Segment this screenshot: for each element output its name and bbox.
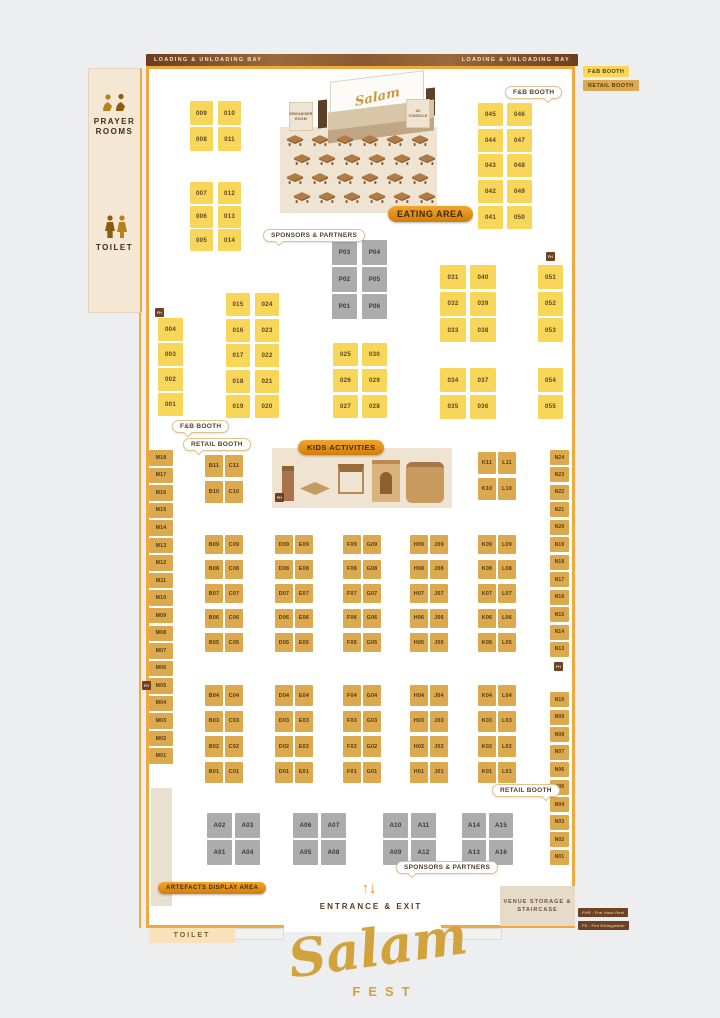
booth-l07: L07: [498, 584, 516, 603]
booth-008: 008: [190, 127, 213, 151]
booth-n15: N15: [550, 607, 569, 622]
booth-f01: F01: [343, 762, 361, 783]
booth-040: 040: [470, 265, 496, 289]
booth-c09: C09: [225, 535, 243, 554]
booth-a10: A10: [383, 813, 408, 838]
booth-c03: C03: [225, 711, 243, 732]
speaker-left-icon: [318, 99, 327, 128]
booth-l09: L09: [498, 535, 516, 554]
booth-042: 042: [478, 180, 503, 203]
booth-022: 022: [255, 344, 279, 367]
booth-l04: L04: [498, 685, 516, 706]
booth-e01: E01: [295, 762, 313, 783]
booth-b05: B05: [205, 633, 223, 652]
venue-storage-staircase: VENUE STORAGE & STAIRCASE: [500, 886, 575, 926]
picnic-table-icon: [393, 153, 411, 171]
booth-015: 015: [226, 293, 250, 316]
booth-c04: C04: [225, 685, 243, 706]
booth-b10: B10: [205, 481, 223, 503]
left-outer-wall: [139, 313, 141, 928]
booth-b01: B01: [205, 762, 223, 783]
booth-029: 029: [362, 369, 387, 392]
booth-n17: N17: [550, 572, 569, 587]
booth-044: 044: [478, 129, 503, 152]
booth-033: 033: [440, 318, 466, 342]
kids-activities-badge: KIDS ACTIVITIES: [298, 440, 384, 455]
picnic-table-icon: [311, 134, 329, 152]
booth-p03: P03: [332, 240, 357, 265]
booth-047: 047: [507, 129, 532, 152]
booth-k03: K03: [478, 711, 496, 732]
booth-l03: L03: [498, 711, 516, 732]
eating-area-badge: EATING AREA: [388, 206, 473, 222]
booth-b03: B03: [205, 711, 223, 732]
booth-f06: F06: [343, 609, 361, 628]
booth-010: 010: [218, 101, 241, 125]
booth-k04: K04: [478, 685, 496, 706]
booth-l10: L10: [498, 478, 516, 500]
kids-castle-illustration: [372, 460, 400, 502]
booth-023: 023: [255, 319, 279, 342]
booth-052: 052: [538, 292, 563, 316]
picnic-table-icon: [343, 153, 361, 171]
booth-k11: K11: [478, 452, 496, 474]
booth-e09: E09: [295, 535, 313, 554]
booth-b08: B08: [205, 560, 223, 579]
fire-hose-reel-legend: FHR : Fire Hose Reel: [578, 908, 628, 917]
booth-p01: P01: [332, 294, 357, 319]
booth-j09: J09: [430, 535, 448, 554]
booth-m05: M05: [149, 678, 173, 694]
picnic-table-icon: [361, 172, 379, 190]
booth-m17: M17: [149, 468, 173, 484]
booth-l02: L02: [498, 736, 516, 757]
booth-p06: P06: [362, 294, 387, 319]
booth-k02: K02: [478, 736, 496, 757]
booth-m08: M08: [149, 626, 173, 642]
booth-n24: N24: [550, 450, 569, 465]
booth-m07: M07: [149, 643, 173, 659]
fnb-booth-bubble-left: F&B BOOTH: [172, 420, 229, 433]
booth-p04: P04: [362, 240, 387, 265]
booth-m15: M15: [149, 503, 173, 519]
booth-d09: D09: [275, 535, 293, 554]
booth-n04: N04: [550, 797, 569, 812]
picnic-table-icon: [411, 134, 429, 152]
booth-n22: N22: [550, 485, 569, 500]
fire-hose-marker-icon: FH: [546, 252, 555, 261]
loading-bay-bar: LOADING & UNLOADING BAY LOADING & UNLOAD…: [146, 54, 578, 66]
booth-d07: D07: [275, 584, 293, 603]
booth-025: 025: [333, 343, 358, 366]
booth-017: 017: [226, 344, 250, 367]
booth-a15: A15: [489, 813, 513, 838]
booth-l08: L08: [498, 560, 516, 579]
booth-n19: N19: [550, 537, 569, 552]
booth-a08: A08: [321, 840, 346, 865]
booth-h08: H08: [410, 560, 428, 579]
picnic-table-icon: [368, 153, 386, 171]
booth-c11: C11: [225, 455, 243, 477]
booth-n10: N10: [550, 692, 569, 707]
booth-n02: N02: [550, 832, 569, 847]
booth-041: 041: [478, 206, 503, 229]
sponsors-partners-bubble-bottom: SPONSORS & PARTNERS: [396, 861, 498, 874]
booth-e02: E02: [295, 736, 313, 757]
booth-011: 011: [218, 127, 241, 151]
booth-028: 028: [362, 395, 387, 418]
booth-l11: L11: [498, 452, 516, 474]
booth-h01: H01: [410, 762, 428, 783]
booth-m02: M02: [149, 731, 173, 747]
picnic-table-icon: [286, 172, 304, 190]
booth-d02: D02: [275, 736, 293, 757]
booth-a11: A11: [411, 813, 436, 838]
booth-b11: B11: [205, 455, 223, 477]
booth-m03: M03: [149, 713, 173, 729]
booth-026: 026: [333, 369, 358, 392]
booth-l05: L05: [498, 633, 516, 652]
legend-retail-chip: RETAIL BOOTH: [583, 80, 639, 91]
booth-n23: N23: [550, 467, 569, 482]
booth-g08: G08: [363, 560, 381, 579]
booth-m04: M04: [149, 696, 173, 712]
fire-hose-marker-icon: FH: [155, 308, 164, 317]
kids-bouncy-castle-illustration: [406, 462, 444, 503]
booth-a03: A03: [235, 813, 260, 838]
loading-bay-label-right: LOADING & UNLOADING BAY: [462, 57, 570, 63]
booth-046: 046: [507, 103, 532, 126]
booth-a14: A14: [462, 813, 486, 838]
fire-hose-marker-icon: FH: [142, 681, 151, 690]
booth-009: 009: [190, 101, 213, 125]
picnic-table-icon: [361, 134, 379, 152]
booth-030: 030: [362, 343, 387, 366]
booth-m12: M12: [149, 555, 173, 571]
booth-051: 051: [538, 265, 563, 289]
booth-e06: E06: [295, 609, 313, 628]
booth-j08: J08: [430, 560, 448, 579]
picnic-table-icon: [386, 172, 404, 190]
booth-h09: H09: [410, 535, 428, 554]
booth-050: 050: [507, 206, 532, 229]
booth-d05: D05: [275, 633, 293, 652]
salam-fest-logo-sub: FEST: [340, 984, 430, 999]
booth-048: 048: [507, 154, 532, 177]
booth-007: 007: [190, 182, 213, 204]
booth-m09: M09: [149, 608, 173, 624]
booth-l01: L01: [498, 762, 516, 783]
booth-f07: F07: [343, 584, 361, 603]
booth-c06: C06: [225, 609, 243, 628]
picnic-table-icon: [368, 191, 386, 209]
booth-c02: C02: [225, 736, 243, 757]
booth-h03: H03: [410, 711, 428, 732]
loading-bay-label-left: LOADING & UNLOADING BAY: [154, 57, 262, 63]
booth-d06: D06: [275, 609, 293, 628]
kids-activities-area: [272, 448, 452, 508]
booth-038: 038: [470, 318, 496, 342]
booth-n03: N03: [550, 815, 569, 830]
booth-n06: N06: [550, 762, 569, 777]
booth-014: 014: [218, 229, 241, 251]
booth-020: 020: [255, 395, 279, 418]
booth-002: 002: [158, 368, 183, 391]
booth-g06: G06: [363, 609, 381, 628]
toilet-label: TOILET: [89, 243, 140, 253]
booth-n08: N08: [550, 727, 569, 742]
booth-f09: F09: [343, 535, 361, 554]
booth-k01: K01: [478, 762, 496, 783]
booth-b06: B06: [205, 609, 223, 628]
booth-037: 037: [470, 368, 496, 392]
floor-plan-canvas: LOADING & UNLOADING BAY LOADING & UNLOAD…: [0, 0, 720, 1018]
booth-f08: F08: [343, 560, 361, 579]
booth-d08: D08: [275, 560, 293, 579]
booth-m11: M11: [149, 573, 173, 589]
booth-a05: A05: [293, 840, 318, 865]
booth-c01: C01: [225, 762, 243, 783]
retail-booth-bubble-bottom: RETAIL BOOTH: [492, 784, 560, 797]
prayer-rooms-label: PRAYER ROOMS: [89, 117, 140, 137]
booth-h02: H02: [410, 736, 428, 757]
booth-j02: J02: [430, 736, 448, 757]
picnic-table-icon: [318, 153, 336, 171]
legend-fnb-chip: F&B BOOTH: [583, 66, 629, 77]
picnic-table-icon: [336, 134, 354, 152]
booth-m01: M01: [149, 748, 173, 764]
picnic-table-icon: [343, 191, 361, 209]
booth-034: 034: [440, 368, 466, 392]
booth-b02: B02: [205, 736, 223, 757]
picnic-table-icon: [286, 134, 304, 152]
booth-032: 032: [440, 292, 466, 316]
organiser-room: ORGANISER ROOM: [289, 102, 313, 131]
booth-p02: P02: [332, 267, 357, 292]
booth-n16: N16: [550, 590, 569, 605]
toilet-bottom-label: TOILET: [149, 928, 235, 943]
booth-e08: E08: [295, 560, 313, 579]
booth-b07: B07: [205, 584, 223, 603]
booth-m16: M16: [149, 485, 173, 501]
booth-m06: M06: [149, 661, 173, 677]
toilet-icon: [103, 215, 129, 239]
booth-j04: J04: [430, 685, 448, 706]
booth-m10: M10: [149, 590, 173, 606]
booth-027: 027: [333, 395, 358, 418]
booth-k10: K10: [478, 478, 496, 500]
booth-n20: N20: [550, 520, 569, 535]
picnic-table-icon: [293, 153, 311, 171]
picnic-table-icon: [418, 153, 436, 171]
booth-c10: C10: [225, 481, 243, 503]
booth-a04: A04: [235, 840, 260, 865]
booth-c07: C07: [225, 584, 243, 603]
booth-n21: N21: [550, 502, 569, 517]
booth-019: 019: [226, 395, 250, 418]
booth-n14: N14: [550, 625, 569, 640]
booth-g05: G05: [363, 633, 381, 652]
booth-036: 036: [470, 395, 496, 419]
booth-045: 045: [478, 103, 503, 126]
fire-hose-marker-icon: FH: [275, 493, 284, 502]
kids-gazebo-illustration: [338, 464, 364, 494]
booth-003: 003: [158, 343, 183, 366]
fire-hose-marker-icon: FH: [554, 662, 563, 671]
picnic-table-icon: [411, 172, 429, 190]
booth-039: 039: [470, 292, 496, 316]
booth-013: 013: [218, 206, 241, 228]
retail-booth-bubble-mid: RETAIL BOOTH: [183, 438, 251, 451]
booth-g04: G04: [363, 685, 381, 706]
booth-j01: J01: [430, 762, 448, 783]
booth-n07: N07: [550, 745, 569, 760]
prayer-icon: [101, 93, 131, 113]
booth-j03: J03: [430, 711, 448, 732]
booth-h06: H06: [410, 609, 428, 628]
booth-k09: K09: [478, 535, 496, 554]
fnb-booth-bubble-top: F&B BOOTH: [505, 86, 562, 99]
booth-f02: F02: [343, 736, 361, 757]
booth-a06: A06: [293, 813, 318, 838]
picnic-table-icon: [318, 191, 336, 209]
booth-h07: H07: [410, 584, 428, 603]
booth-b04: B04: [205, 685, 223, 706]
booth-h05: H05: [410, 633, 428, 652]
booth-f05: F05: [343, 633, 361, 652]
booth-b09: B09: [205, 535, 223, 554]
booth-c08: C08: [225, 560, 243, 579]
booth-018: 018: [226, 370, 250, 393]
booth-055: 055: [538, 395, 563, 419]
booth-k08: K08: [478, 560, 496, 579]
booth-031: 031: [440, 265, 466, 289]
booth-d01: D01: [275, 762, 293, 783]
booth-006: 006: [190, 206, 213, 228]
booth-j05: J05: [430, 633, 448, 652]
booth-021: 021: [255, 370, 279, 393]
booth-k07: K07: [478, 584, 496, 603]
booth-n01: N01: [550, 850, 569, 865]
booth-012: 012: [218, 182, 241, 204]
booth-054: 054: [538, 368, 563, 392]
booth-043: 043: [478, 154, 503, 177]
booth-j07: J07: [430, 584, 448, 603]
booth-g09: G09: [363, 535, 381, 554]
booth-n09: N09: [550, 710, 569, 725]
booth-e05: E05: [295, 633, 313, 652]
egress-door-left: [227, 928, 284, 940]
booth-n13: N13: [550, 642, 569, 657]
picnic-table-icon: [293, 191, 311, 209]
booth-m13: M13: [149, 538, 173, 554]
booth-024: 024: [255, 293, 279, 316]
booth-f03: F03: [343, 711, 361, 732]
booth-h04: H04: [410, 685, 428, 706]
picnic-table-icon: [386, 134, 404, 152]
booth-053: 053: [538, 318, 563, 342]
booth-k05: K05: [478, 633, 496, 652]
booth-a01: A01: [207, 840, 232, 865]
booth-016: 016: [226, 319, 250, 342]
booth-j06: J06: [430, 609, 448, 628]
sponsors-partners-bubble-top: SPONSORS & PARTNERS: [263, 229, 365, 242]
booth-004: 004: [158, 318, 183, 341]
booth-d04: D04: [275, 685, 293, 706]
booth-005: 005: [190, 229, 213, 251]
booth-p05: P05: [362, 267, 387, 292]
entrance-arrows-icon: ↑↓: [346, 880, 392, 897]
booth-g07: G07: [363, 584, 381, 603]
booth-e07: E07: [295, 584, 313, 603]
toilet-bottom-text: TOILET: [174, 932, 211, 939]
booth-a07: A07: [321, 813, 346, 838]
booth-n18: N18: [550, 555, 569, 570]
booth-g01: G01: [363, 762, 381, 783]
booth-a02: A02: [207, 813, 232, 838]
picnic-table-icon: [336, 172, 354, 190]
booth-g03: G03: [363, 711, 381, 732]
av-console: AV CONSOLE: [406, 99, 430, 128]
sidebar-facilities: PRAYER ROOMS TOILET: [88, 68, 142, 313]
booth-035: 035: [440, 395, 466, 419]
booth-m18: M18: [149, 450, 173, 466]
booth-g02: G02: [363, 736, 381, 757]
artefacts-display-badge: ARTEFACTS DISPLAY AREA: [158, 882, 266, 894]
booth-m14: M14: [149, 520, 173, 536]
booth-k06: K06: [478, 609, 496, 628]
booth-049: 049: [507, 180, 532, 203]
booth-l06: L06: [498, 609, 516, 628]
booth-d03: D03: [275, 711, 293, 732]
picnic-table-icon: [311, 172, 329, 190]
booth-001: 001: [158, 393, 183, 416]
booth-c05: C05: [225, 633, 243, 652]
booth-f04: F04: [343, 685, 361, 706]
booth-e04: E04: [295, 685, 313, 706]
kids-rug-illustration: [300, 482, 330, 495]
booth-e03: E03: [295, 711, 313, 732]
fire-extinguisher-legend: FE : Fire Extinguisher: [578, 921, 629, 930]
